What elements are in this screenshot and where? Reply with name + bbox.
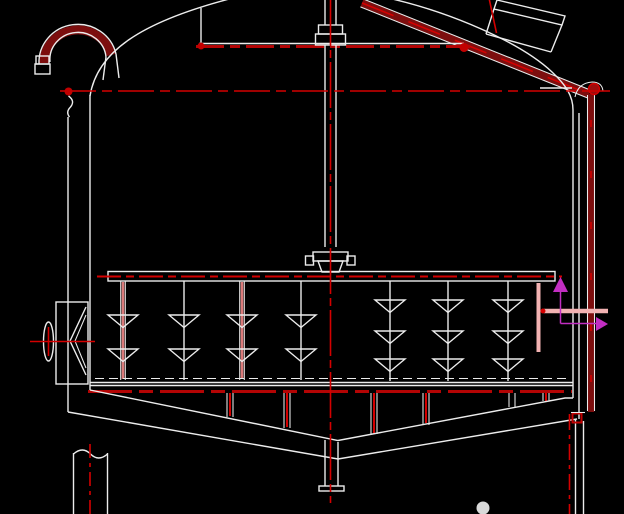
plate-support[interactable] [227,393,233,417]
tine-rods-right[interactable] [375,281,523,381]
right-arrowhead[interactable] [596,317,608,331]
plate-support[interactable] [509,393,515,407]
shaft-hub-line[interactable] [306,256,314,265]
head-left-joint-dot [65,88,73,96]
support-leg-right[interactable] [570,413,586,514]
cad-drawing-viewport: CAD elevation drawing: agitated rake tan… [0,0,624,514]
cone-bottom[interactable] [68,390,577,459]
beam-left-joint-dot[interactable] [198,43,205,50]
tine-rod-red[interactable] [108,281,138,380]
side-outlet-pink[interactable] [541,309,609,314]
tine-rods-left[interactable] [108,281,316,380]
head-skirt-squiggle[interactable] [68,96,73,117]
tine-rod-white[interactable] [286,281,316,380]
feed-pipe[interactable] [360,0,590,98]
cone-outer[interactable] [68,412,577,459]
support-leg-left[interactable] [74,444,108,514]
manhole-line[interactable] [551,25,562,52]
outlet-flange[interactable] [319,486,344,491]
tine-rod-white[interactable] [375,281,405,381]
vent-swan-neck-line[interactable] [35,64,50,74]
cone-inner[interactable] [90,390,573,441]
valve-fitting-line[interactable] [573,414,582,423]
manhole[interactable] [486,0,565,52]
tine-rod-white[interactable] [433,281,463,381]
flow-arrows[interactable] [553,277,608,331]
side-nozzle-left[interactable] [30,302,95,384]
tine-rod-white[interactable] [169,281,199,380]
manhole-line[interactable] [494,0,565,25]
feed-pipe-line[interactable] [360,7,587,98]
tine-rod-white[interactable] [493,281,523,381]
outlet-nozzle[interactable] [319,440,344,491]
plate-support[interactable] [543,393,549,401]
vent-swan-neck-line[interactable] [116,54,119,78]
watermark-dot [477,502,490,514]
beam-right-joint-dot[interactable] [460,43,469,52]
manhole-line[interactable] [486,34,551,52]
tank-shell[interactable] [68,95,579,419]
plate-support[interactable] [284,393,290,428]
side-outlet-pink-line[interactable] [541,309,546,314]
cad-drawing-canvas[interactable]: CAD elevation drawing: agitated rake tan… [0,0,624,514]
elbow-joint-dot[interactable] [589,84,600,95]
plate-support[interactable] [423,393,429,425]
vent-swan-neck[interactable] [35,24,119,80]
plate-support[interactable] [371,393,377,434]
tine-rod-red[interactable] [227,281,257,380]
